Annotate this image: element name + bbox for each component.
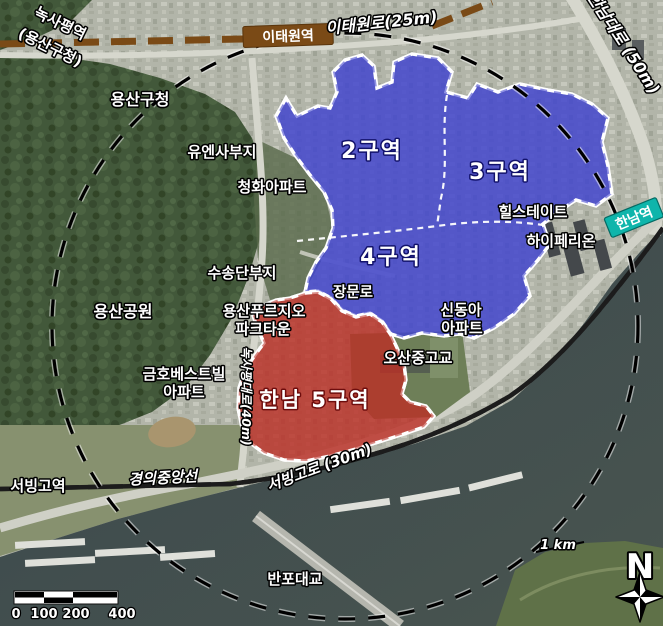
hillstate-label: 힐스테이트 [498,203,567,221]
kumho-label-line2: 아파트 [163,383,205,401]
scale-bar: 0 100 200 400 [11,591,135,622]
scale-tick-400: 400 [108,607,135,622]
kumho-label-line1: 금호베스트빌 [143,365,226,383]
cheonghwa-apt-label: 청화아파트 [237,178,306,196]
prugio-label-line1: 용산푸르지오 [223,302,306,320]
satellite-map: 이태원역 한남역 녹사평역 (용산구청) 이태원로(25m) 한남대로 (50m… [0,0,663,626]
prugio-label-line2: 파크타운 [235,320,290,338]
itaewon-station-box: 이태원역 [243,23,334,47]
sindonga-label-line1: 신동아 [440,301,482,319]
yongsan-park-label: 용산공원 [94,302,153,321]
noksapyeong-daero-label: 녹사평대로(40m) [239,346,254,445]
banpo-bridge-label: 반포대교 [267,570,322,588]
itaewon-station-label: 이태원역 [262,27,314,46]
scale-tick-200: 200 [62,607,89,622]
district-3-label: 3구역 [469,160,531,185]
map-canvas: 이태원역 한남역 녹사평역 (용산구청) 이태원로(25m) 한남대로 (50m… [0,0,663,626]
susongdan-site-label: 수송단부지 [207,264,276,282]
gyeongui-line-label: 경의중앙선 [128,467,200,489]
sindonga-label-line2: 아파트 [441,319,483,337]
hyperion-label: 하이페리온 [526,232,595,250]
jangmun-ro-label: 장문로 [333,283,373,301]
district-5-label: 한남 5구역 [259,388,370,412]
scale-tick-0: 0 [11,607,20,622]
yongsan-gu-office-label: 용산구청 [111,90,170,109]
un-site-label: 유엔사부지 [187,143,256,161]
osan-school-label: 오산중고교 [383,349,452,367]
district-2-label: 2구역 [341,139,403,164]
district-4-label: 4구역 [360,245,422,270]
radius-1km-label: 1 km [540,538,576,553]
seobinggo-station-label: 서빙고역 [10,477,65,495]
scale-tick-100: 100 [30,607,57,622]
